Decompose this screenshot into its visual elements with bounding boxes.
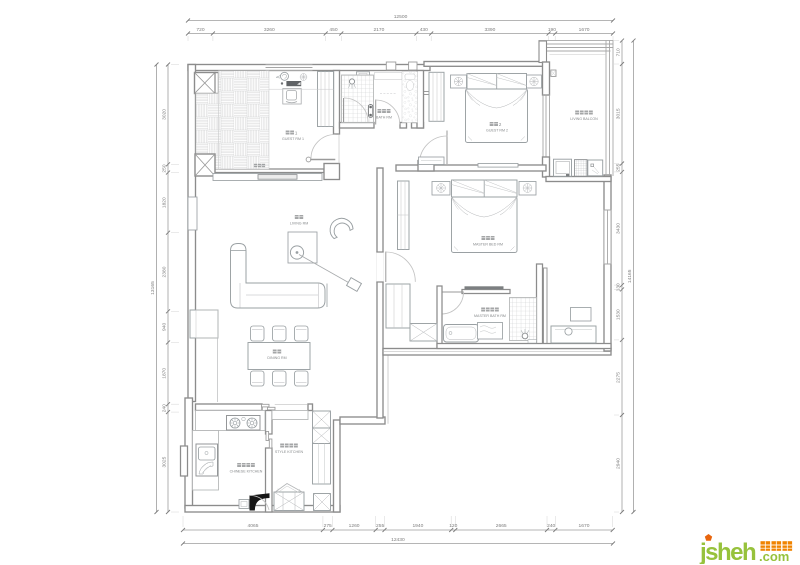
svg-text:3260: 3260 xyxy=(264,27,275,33)
svg-text:2170: 2170 xyxy=(373,27,384,33)
svg-text:275: 275 xyxy=(324,523,332,529)
svg-text:710: 710 xyxy=(616,48,622,56)
svg-text:STYLE KITCHEN: STYLE KITCHEN xyxy=(275,450,304,454)
svg-text:12430: 12430 xyxy=(391,537,405,543)
svg-text:14165: 14165 xyxy=(627,269,633,283)
svg-text:255: 255 xyxy=(376,523,384,529)
svg-text:13165: 13165 xyxy=(150,281,156,295)
svg-text:2275: 2275 xyxy=(616,372,622,383)
svg-text:3015: 3015 xyxy=(616,108,622,119)
svg-text:1940: 1940 xyxy=(412,523,423,529)
svg-text:CHINESE KITCHEN: CHINESE KITCHEN xyxy=(230,470,263,474)
svg-text:240: 240 xyxy=(162,404,168,412)
svg-text:430: 430 xyxy=(420,27,428,33)
svg-text:.com: .com xyxy=(759,549,789,564)
svg-text:1870: 1870 xyxy=(162,368,168,379)
svg-text:DINING RM: DINING RM xyxy=(267,356,286,360)
svg-text:MASTER BATH RM: MASTER BATH RM xyxy=(474,314,506,318)
svg-text:130: 130 xyxy=(616,283,622,291)
svg-text:720: 720 xyxy=(196,27,204,33)
svg-text:jsheh: jsheh xyxy=(699,539,756,564)
svg-text:3020: 3020 xyxy=(162,109,168,120)
svg-text:LIVING BALCON: LIVING BALCON xyxy=(570,117,598,121)
svg-text:255: 255 xyxy=(616,163,622,171)
svg-text:3390: 3390 xyxy=(484,27,495,33)
svg-text:1: 1 xyxy=(295,131,298,136)
svg-text:3430: 3430 xyxy=(616,223,622,234)
svg-text:LIVING RM: LIVING RM xyxy=(290,222,308,226)
svg-text:1820: 1820 xyxy=(162,197,168,208)
svg-text:1670: 1670 xyxy=(579,523,590,529)
svg-text:940: 940 xyxy=(162,323,168,331)
svg-text:BATH RM: BATH RM xyxy=(376,116,392,120)
svg-text:4065: 4065 xyxy=(248,523,259,529)
svg-text:1260: 1260 xyxy=(349,523,360,529)
svg-text:GUEST RM 2: GUEST RM 2 xyxy=(486,129,508,133)
svg-text:1530: 1530 xyxy=(616,309,622,320)
svg-text:250: 250 xyxy=(162,164,168,172)
svg-text:240: 240 xyxy=(547,523,555,529)
svg-text:12500: 12500 xyxy=(394,14,408,20)
svg-text:2665: 2665 xyxy=(496,523,507,529)
svg-text:120: 120 xyxy=(449,523,457,529)
svg-text:2940: 2940 xyxy=(616,458,622,469)
svg-text:450: 450 xyxy=(329,27,337,33)
svg-text:2380: 2380 xyxy=(162,266,168,277)
svg-text:MASTER BED RM: MASTER BED RM xyxy=(473,243,503,247)
svg-text:1670: 1670 xyxy=(579,27,590,33)
svg-text:190: 190 xyxy=(548,27,556,33)
svg-text:GUEST RM 1: GUEST RM 1 xyxy=(282,137,304,141)
svg-text:3025: 3025 xyxy=(162,456,168,467)
